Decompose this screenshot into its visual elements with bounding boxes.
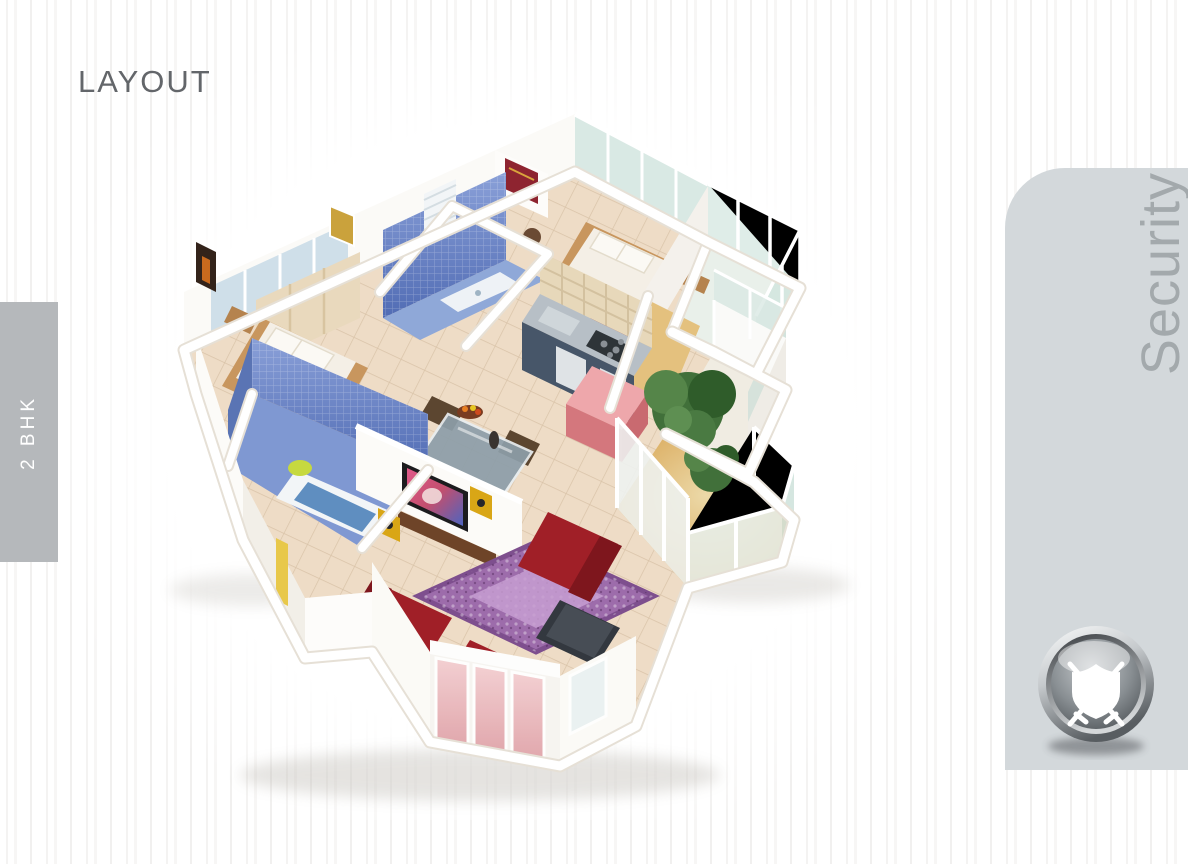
security-panel-label: Security [1134, 172, 1188, 375]
brochure-page: LAYOUT 2 BHK [0, 0, 1188, 864]
shield-security-icon[interactable] [1028, 620, 1164, 760]
security-panel: Security [1005, 168, 1188, 770]
